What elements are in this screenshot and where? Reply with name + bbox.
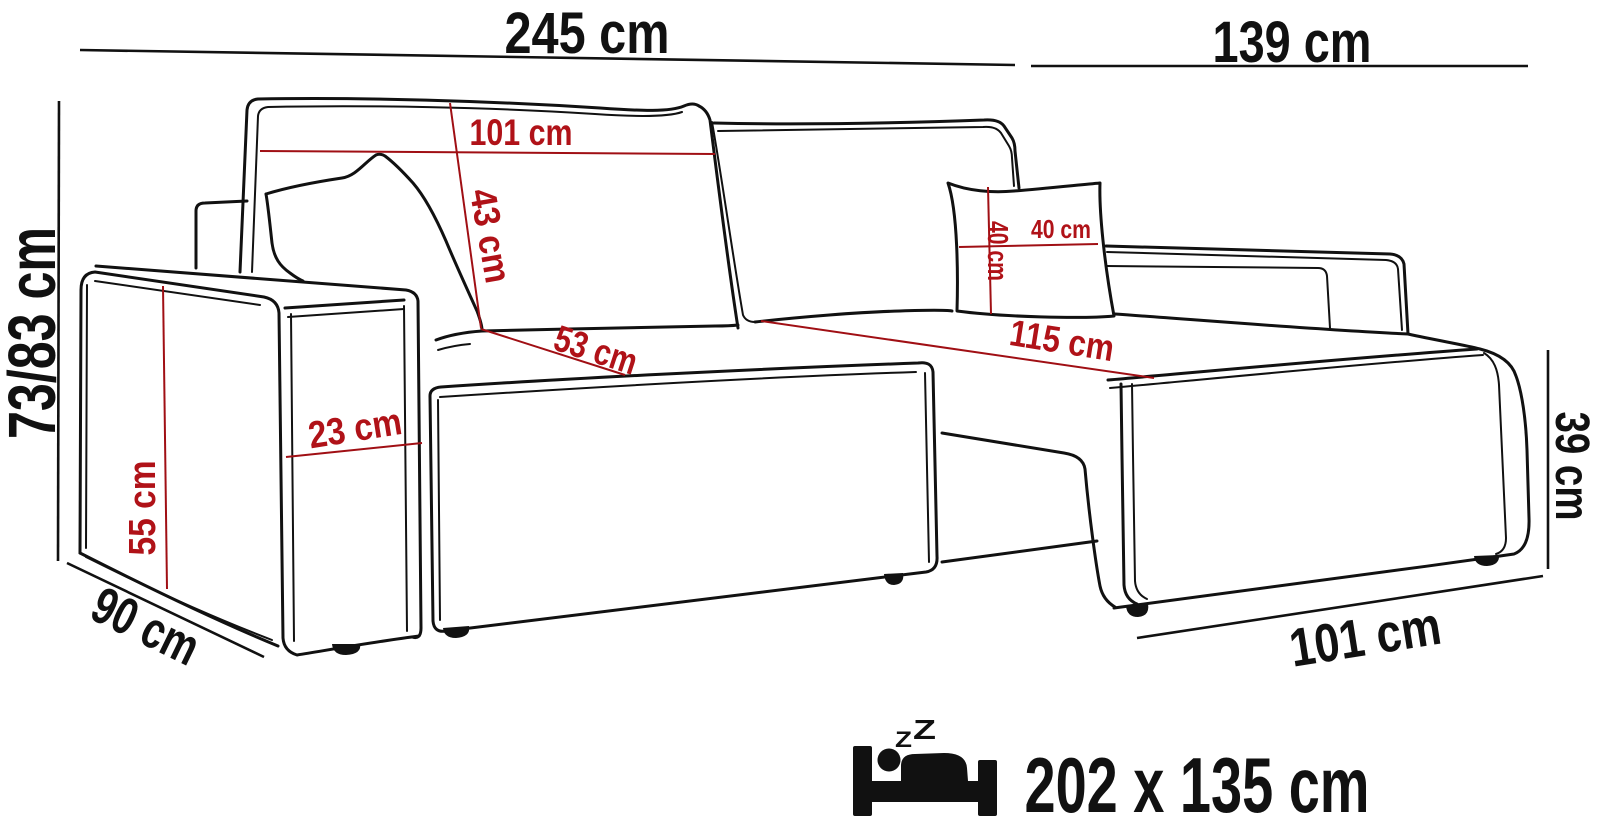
svg-text:55 cm: 55 cm (122, 461, 164, 556)
svg-text:Z: Z (913, 714, 936, 745)
svg-text:73/83 cm: 73/83 cm (0, 227, 70, 439)
svg-text:40 cm: 40 cm (981, 221, 1013, 281)
svg-text:202 x 135 cm: 202 x 135 cm (1025, 741, 1370, 828)
svg-text:39 cm: 39 cm (1545, 412, 1598, 521)
svg-text:Z: Z (895, 727, 912, 752)
svg-text:139 cm: 139 cm (1213, 10, 1372, 75)
svg-text:101 cm: 101 cm (470, 112, 573, 153)
svg-text:40 cm: 40 cm (1031, 214, 1091, 244)
svg-text:245 cm: 245 cm (505, 1, 670, 66)
